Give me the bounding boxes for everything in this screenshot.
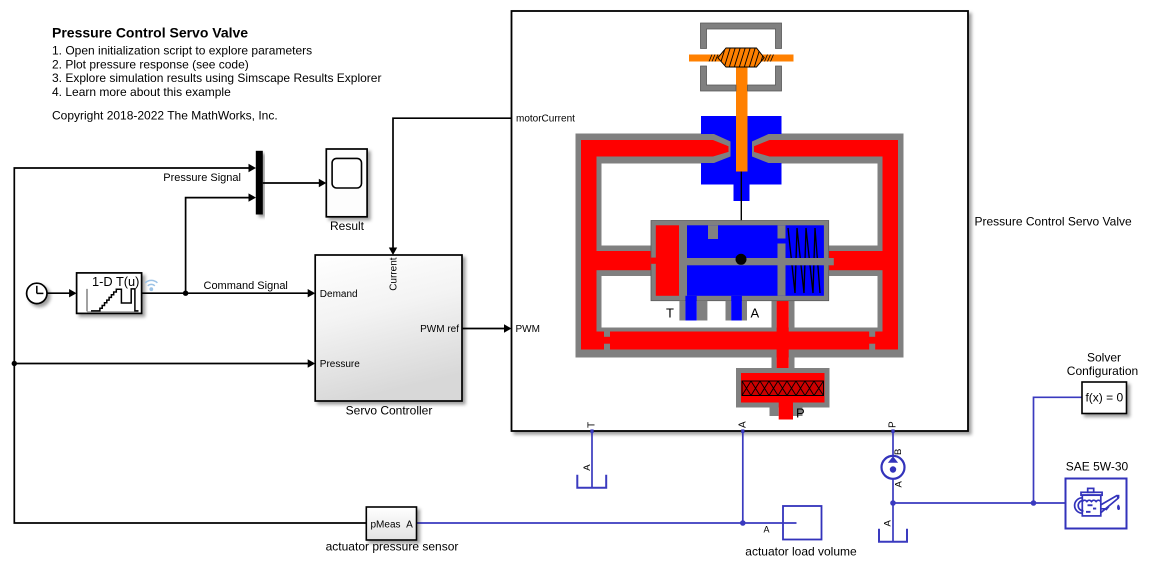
svg-text:motorCurrent: motorCurrent [516,114,575,125]
svg-text:Demand: Demand [320,289,358,300]
svg-text:SAE 5W-30: SAE 5W-30 [1066,459,1129,473]
svg-text:A: A [894,481,905,488]
svg-text:PWM ref: PWM ref [420,324,459,335]
svg-text:Servo Controller: Servo Controller [346,403,433,417]
svg-text:1. Open initialization script: 1. Open initialization script to explore… [52,44,312,58]
svg-text:Solver: Solver [1087,350,1121,364]
svg-text:Configuration: Configuration [1067,364,1138,378]
svg-text:Copyright 2018-2022 The MathWo: Copyright 2018-2022 The MathWorks, Inc. [52,109,278,123]
svg-text:A: A [582,464,593,471]
svg-text:Pressure Signal: Pressure Signal [163,172,241,184]
svg-text:PWM: PWM [516,324,540,335]
svg-text:Current: Current [388,257,399,291]
svg-text:A: A [406,519,413,530]
svg-text:Result: Result [330,219,365,233]
svg-text:1-D T(u): 1-D T(u) [92,274,139,289]
svg-text:Pressure: Pressure [320,359,360,370]
svg-text:P: P [796,406,805,421]
svg-text:actuator pressure sensor: actuator pressure sensor [326,540,459,554]
svg-text:4. Learn more about this examp: 4. Learn more about this example [52,85,231,99]
svg-text:Pressure Control Servo Valve: Pressure Control Servo Valve [975,215,1133,229]
svg-text:B: B [893,449,904,455]
svg-text:2. Plot pressure response (see: 2. Plot pressure response (see code) [52,57,249,71]
svg-text:3. Explore simulation results: 3. Explore simulation results using Sims… [52,71,381,85]
svg-text:Command Signal: Command Signal [204,280,288,292]
svg-text:T: T [587,422,598,428]
svg-text:P: P [887,421,898,428]
svg-text:pMeas: pMeas [371,519,401,530]
svg-text:A: A [882,520,893,527]
svg-text:A: A [764,525,770,535]
svg-text:f(x) = 0: f(x) = 0 [1085,391,1123,405]
svg-text:A: A [737,421,748,428]
svg-text:A: A [751,306,760,321]
svg-text:actuator load volume: actuator load volume [745,544,857,558]
svg-text:Pressure Control Servo Valve: Pressure Control Servo Valve [52,24,248,40]
svg-text:T: T [666,306,674,321]
